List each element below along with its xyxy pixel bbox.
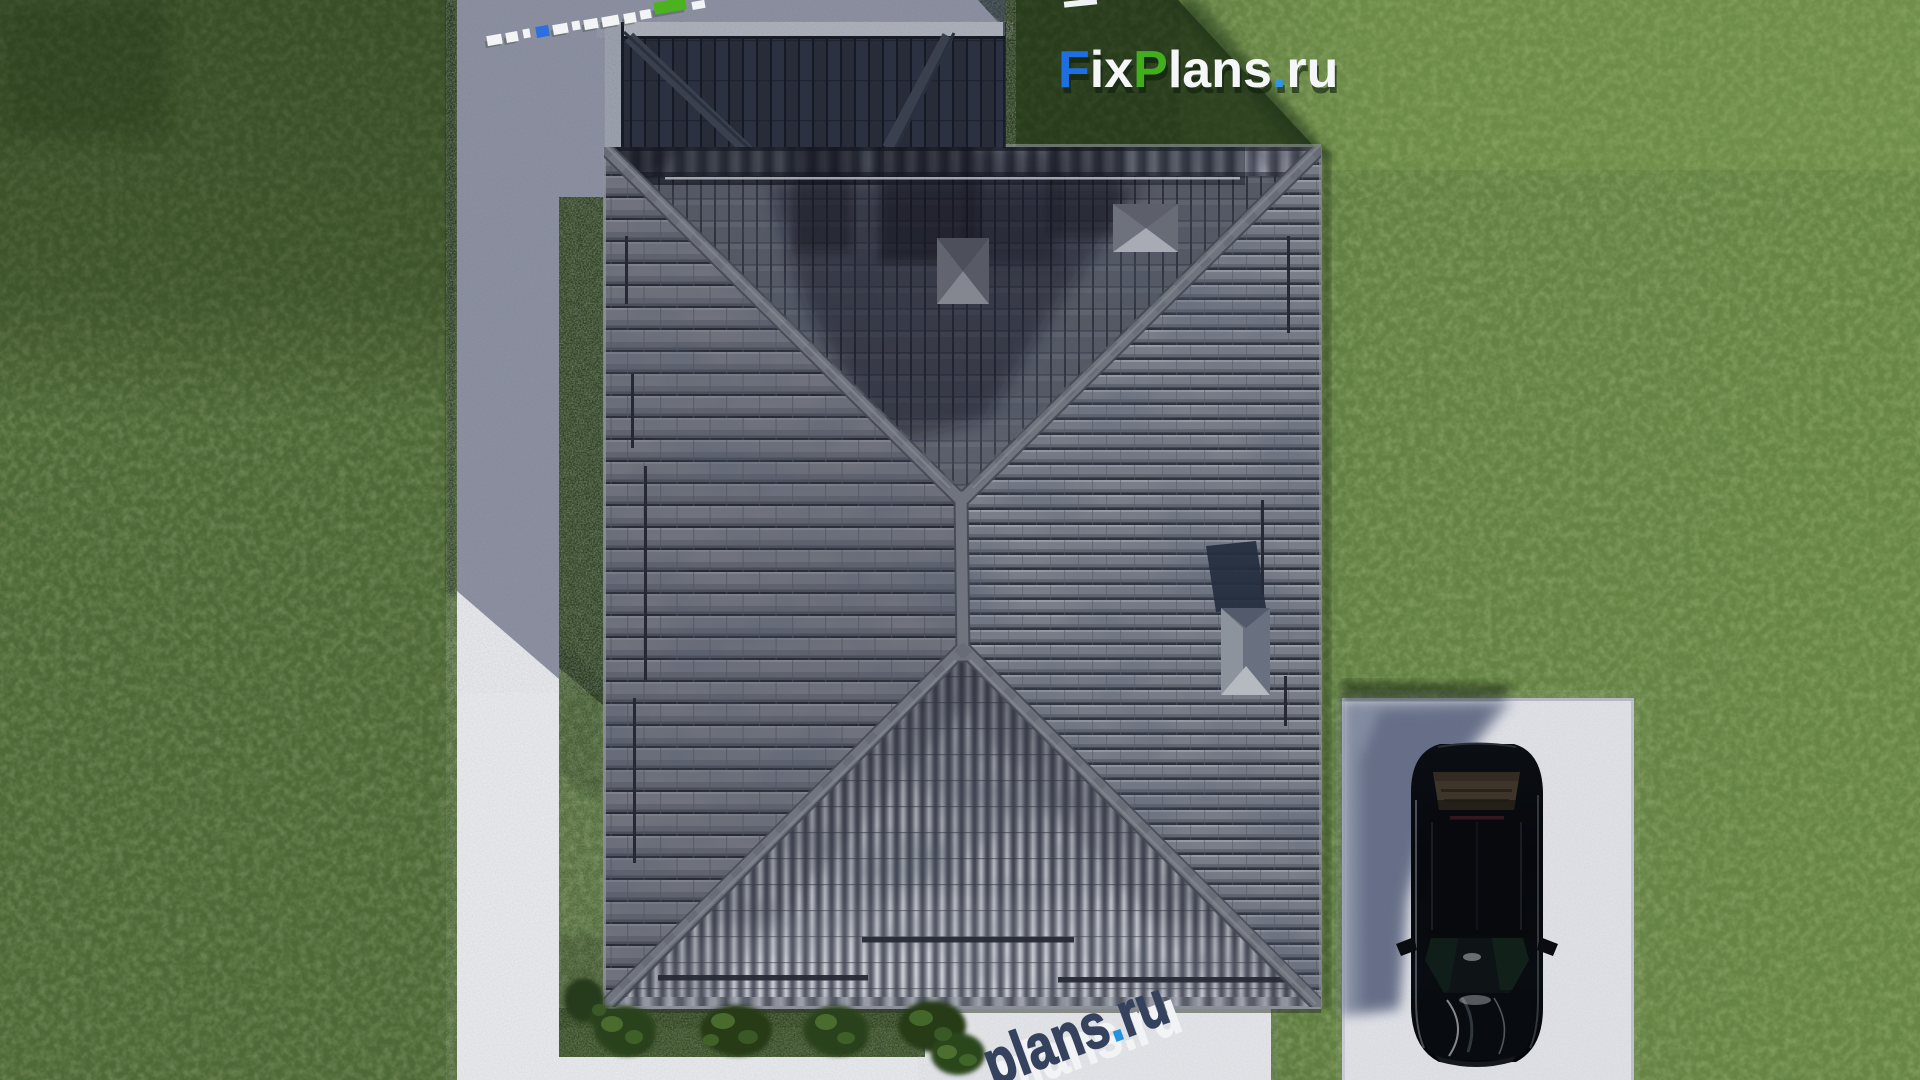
svg-text:FixPlans.ru: FixPlans.ru (1058, 41, 1338, 99)
